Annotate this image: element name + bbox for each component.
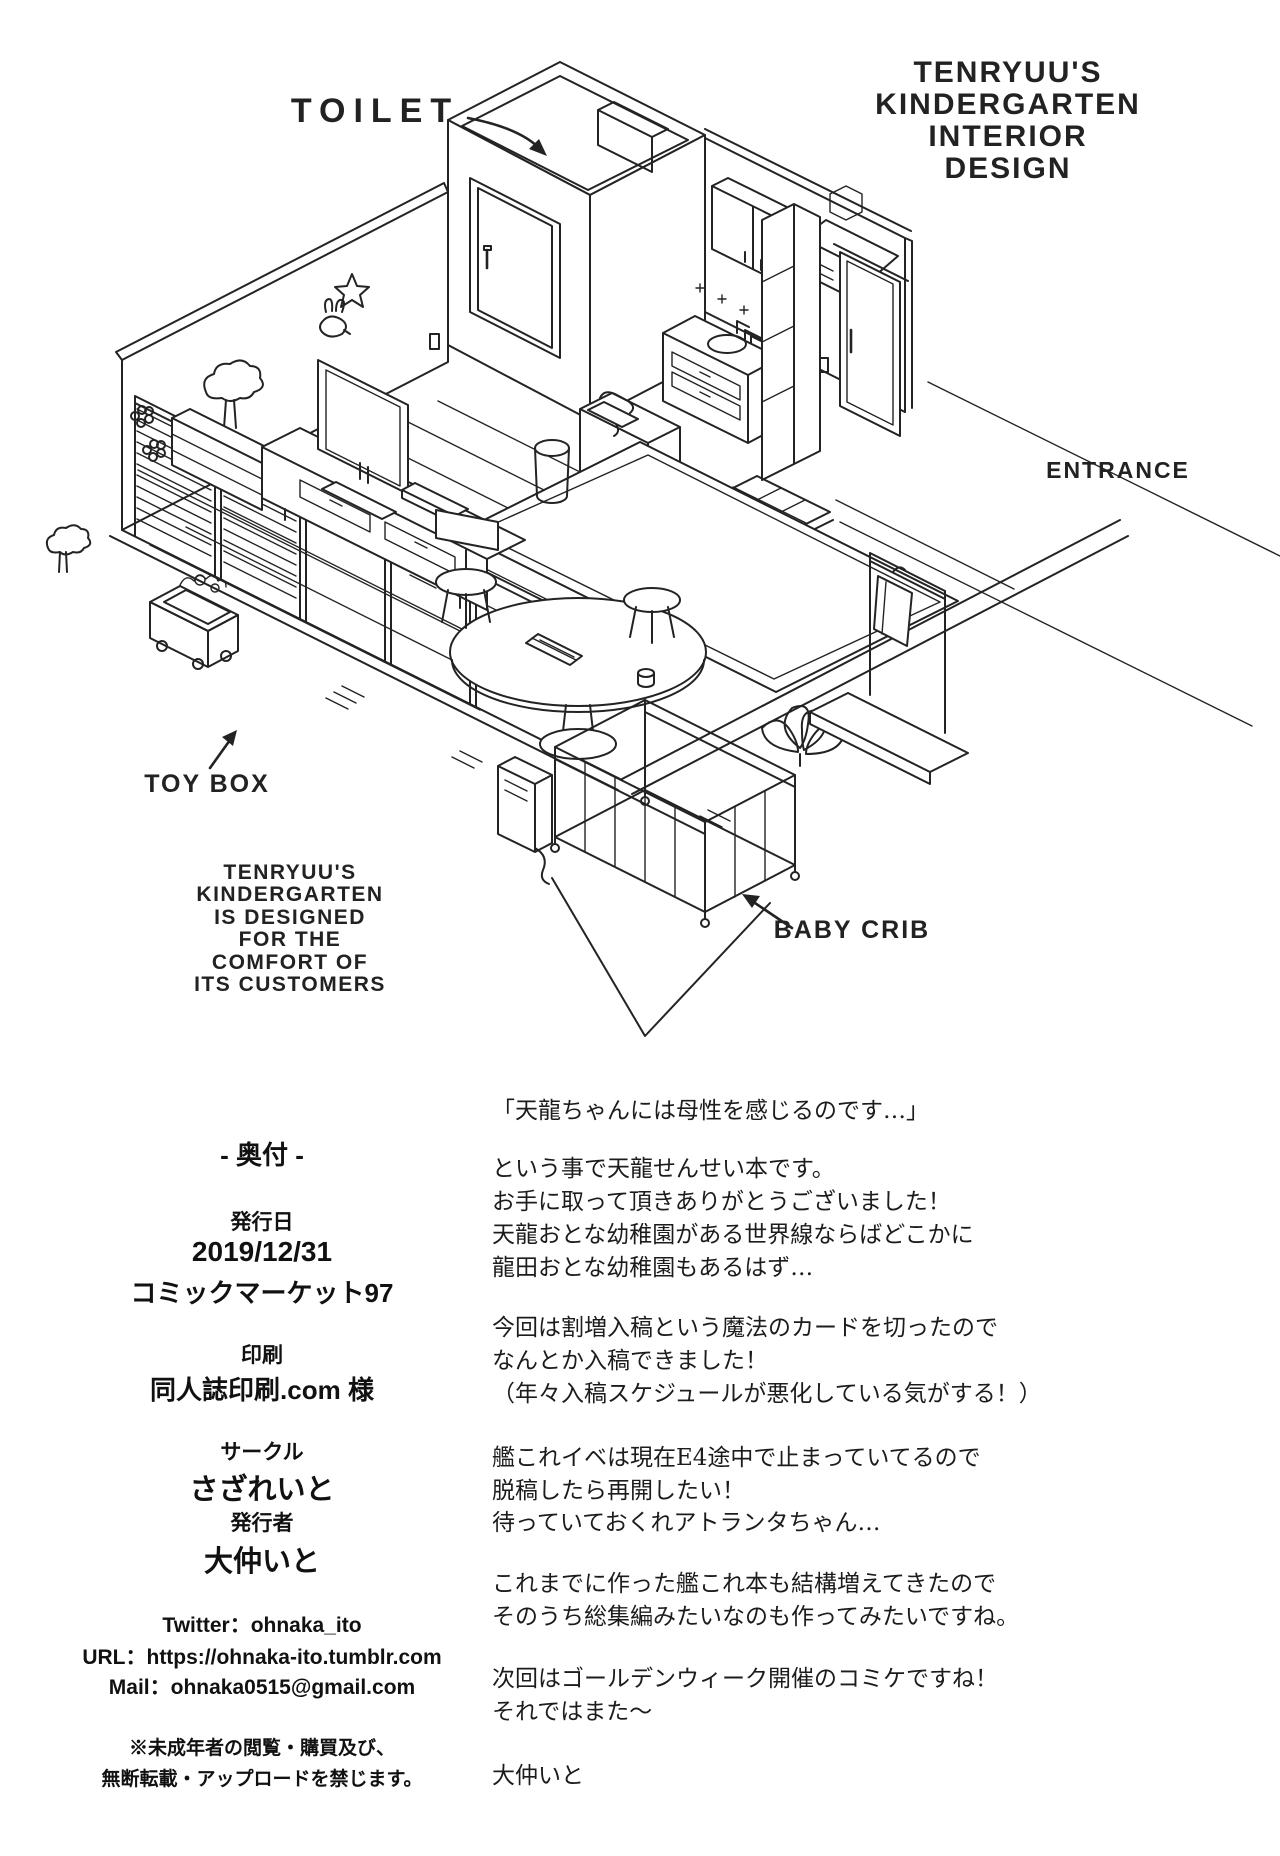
toilet-label: TOILET <box>291 92 459 130</box>
printer-label: 印刷 <box>30 1339 494 1369</box>
caption-line5: COMFORT OF <box>212 951 368 974</box>
afterword-line: そのうち総集編みたいなのも作ってみたいですね。 <box>492 1597 1019 1631</box>
afterword-line: 次回はゴールデンウィーク開催のコミケですね！ <box>492 1659 998 1693</box>
publish-event: コミックマーケット97 <box>30 1273 494 1310</box>
caption-line4: FOR THE <box>239 928 342 951</box>
illustration-title-line3: INTERIOR <box>928 120 1087 153</box>
afterword-line: （年々入稿スケジュールが悪化している気がする！） <box>492 1374 1042 1408</box>
toy-box-arrow <box>210 740 230 768</box>
website-url: URL：https://ohnaka-ito.tumblr.com <box>30 1641 494 1671</box>
afterword-line: なんとか入稿できました！ <box>492 1341 768 1375</box>
toys <box>180 575 226 587</box>
afterword-line: 龍田おとな幼稚園もあるはず… <box>492 1248 813 1282</box>
crib-slats <box>585 762 765 897</box>
afterword-line: これまでに作った艦これ本も結構増えてきたので <box>492 1564 996 1598</box>
printer-name: 同人誌印刷.com 様 <box>30 1370 494 1407</box>
toy-box <box>150 575 238 669</box>
illustration-title-line1: TENRYUU'S <box>913 56 1102 89</box>
baby-crib-label: BABY CRIB <box>774 916 930 944</box>
shoe-cabinet <box>762 204 820 480</box>
publish-date-label: 発行日 <box>30 1206 494 1236</box>
illustration-title-line2: KINDERGARTEN <box>875 88 1141 121</box>
colophon-heading: - 奥付 - <box>30 1135 494 1172</box>
publisher-label: 発行者 <box>30 1507 494 1537</box>
afterword-line: 待っていておくれアトランタちゃん… <box>492 1503 880 1537</box>
approach-path-lines <box>836 382 1280 726</box>
circle-label: サークル <box>30 1436 494 1466</box>
caption-line3: IS DESIGNED <box>214 906 366 929</box>
entrance-label: ENTRANCE <box>1046 457 1190 483</box>
toy-box-arrowhead <box>222 730 237 746</box>
publish-date: 2019/12/31 <box>30 1236 494 1268</box>
caption-line6: ITS CUSTOMERS <box>194 973 386 996</box>
kindergarten-interior-illustration: TOILET TENRYUU'S KINDERGARTEN INTERIOR D… <box>0 0 1280 1060</box>
caption-line2: KINDERGARTEN <box>196 883 383 906</box>
afterword-line: 艦これイベは現在E4途中で止まっていてるので <box>492 1438 981 1472</box>
illustration-title-line4: DESIGN <box>944 152 1071 185</box>
platform-corner <box>552 878 770 1036</box>
humidifier <box>498 757 552 884</box>
afterword-line: 今回は割増入稿という魔法のカードを切ったので <box>492 1308 998 1342</box>
publisher-name: 大仲いと <box>30 1538 494 1580</box>
circle-name: さざれいと <box>30 1466 494 1508</box>
afterword-line: 天龍おとな幼稚園がある世界線ならばどこかに <box>492 1215 974 1249</box>
afterword-line: お手に取って頂きありがとうございました！ <box>492 1182 951 1216</box>
caption-line1: TENRYUU'S <box>223 861 356 884</box>
twitter-handle: Twitter：ohnaka_ito <box>30 1609 494 1639</box>
afterword-line: 「天龍ちゃんには母性を感じるのです…」 <box>492 1091 929 1125</box>
afterword-line: という事で天龍せんせい本です。 <box>492 1149 835 1183</box>
mail-address: Mail：ohnaka0515@gmail.com <box>30 1671 494 1701</box>
notice-line1: ※未成年者の閲覧・購買及び、 <box>30 1733 494 1760</box>
toy-box-label: TOY BOX <box>144 770 270 798</box>
afterword-line: それではまた〜 <box>492 1692 652 1726</box>
notice-line2: 無断転載・アップロードを禁じます。 <box>30 1764 494 1791</box>
afterword-signature: 大仲いと <box>492 1756 584 1790</box>
small-tree-decoration <box>47 525 90 572</box>
afterword-line: 脱稿したら再開したい！ <box>492 1471 745 1505</box>
